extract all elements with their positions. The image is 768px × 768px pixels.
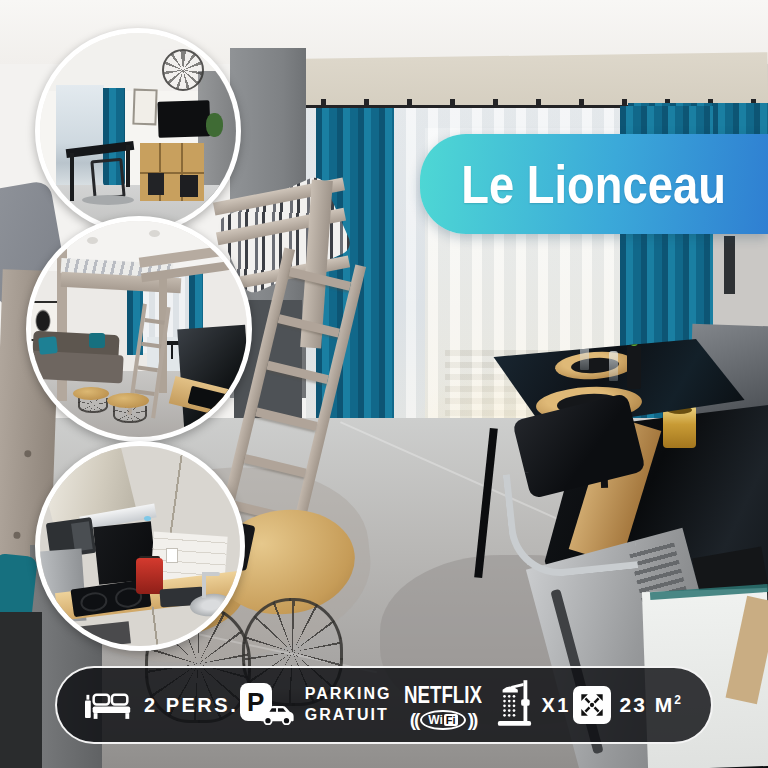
inset-photo-loft-bed (26, 216, 252, 442)
shower-icon (495, 678, 533, 732)
ladder-rung (144, 318, 164, 325)
ladder-rung (278, 314, 340, 337)
netflix-label: NETFLIX (404, 681, 482, 709)
amenity-netflix-wifi: NETFLIX (( Wi Fi )) (393, 681, 493, 730)
bottle (627, 343, 641, 389)
area-label: 23 M2 (620, 693, 683, 717)
teal-cushion (89, 333, 105, 348)
wifi-icon: (( Wi Fi )) (410, 710, 477, 730)
sofa-seat (30, 351, 123, 384)
tv (157, 100, 210, 138)
table-leg (70, 153, 74, 201)
spotlight (149, 230, 160, 237)
inset-photo-living-area (35, 28, 241, 234)
listing-cover: Le Lionceau 2 PERS. P (0, 0, 768, 768)
right-wall-slot (724, 236, 735, 294)
ladder-rung (244, 454, 306, 477)
power-outlet (166, 548, 178, 563)
title-banner: Le Lionceau (420, 134, 768, 234)
red-coffee-machine (136, 558, 163, 594)
wifi-paren-left: (( (410, 710, 419, 729)
storage-box (180, 175, 198, 197)
car-icon (258, 705, 296, 729)
storage-box (148, 173, 164, 195)
wifi-wi: Wi (428, 713, 443, 727)
bed-icon (85, 688, 135, 723)
wifi-paren-right: )) (468, 710, 477, 729)
wire-base (113, 406, 146, 423)
parking-line1: PARKING (305, 685, 392, 702)
page-title: Le Lionceau (462, 153, 727, 215)
area-superscript: 2 (674, 693, 683, 707)
round-side-table (73, 387, 109, 411)
microwave-door (71, 522, 92, 552)
amenity-shower: X1 (495, 678, 571, 732)
capacity-label: 2 PERS. (144, 694, 238, 717)
ladder-rung (141, 342, 161, 349)
ladder-rung (289, 267, 351, 290)
dark-corner (0, 612, 42, 768)
wifi-fi: Fi (444, 714, 458, 726)
inset-photo-kitchenette (35, 441, 245, 651)
placemat (554, 349, 636, 382)
bolt (24, 450, 31, 457)
spotlight (87, 237, 98, 244)
amenities-bar: 2 PERS. P PARKING GRATUIT (55, 666, 713, 744)
wire-lion-art (162, 49, 204, 91)
wifi-oval: Wi Fi (420, 710, 465, 730)
bolt (13, 532, 20, 539)
table-leg (126, 145, 130, 187)
parking-label: PARKING GRATUIT (305, 684, 392, 726)
chair (90, 158, 125, 201)
picture-frame (132, 89, 157, 126)
amenity-capacity: 2 PERS. (85, 688, 238, 723)
table-leg (171, 345, 173, 359)
expand-arrows-icon (573, 686, 611, 724)
bird-art (35, 309, 52, 332)
ladder-rung (266, 361, 328, 384)
wire-base (78, 398, 107, 413)
plant (206, 113, 223, 137)
ladder-rung (138, 366, 158, 373)
floor-mat (82, 195, 134, 205)
wine-glass (609, 351, 618, 381)
amenity-parking: P PARKING GRATUIT (240, 683, 392, 727)
ladder-rung (255, 408, 317, 431)
amenity-area: 23 M2 (573, 686, 683, 724)
parking-line2: GRATUIT (305, 706, 389, 723)
burner (79, 590, 109, 613)
faucet-arm (202, 572, 220, 576)
parking-icon: P (240, 683, 296, 727)
round-side-table (107, 393, 149, 421)
teal-cushion (38, 336, 58, 355)
area-value: 23 M (620, 693, 675, 716)
shower-count-label: X1 (542, 694, 571, 717)
